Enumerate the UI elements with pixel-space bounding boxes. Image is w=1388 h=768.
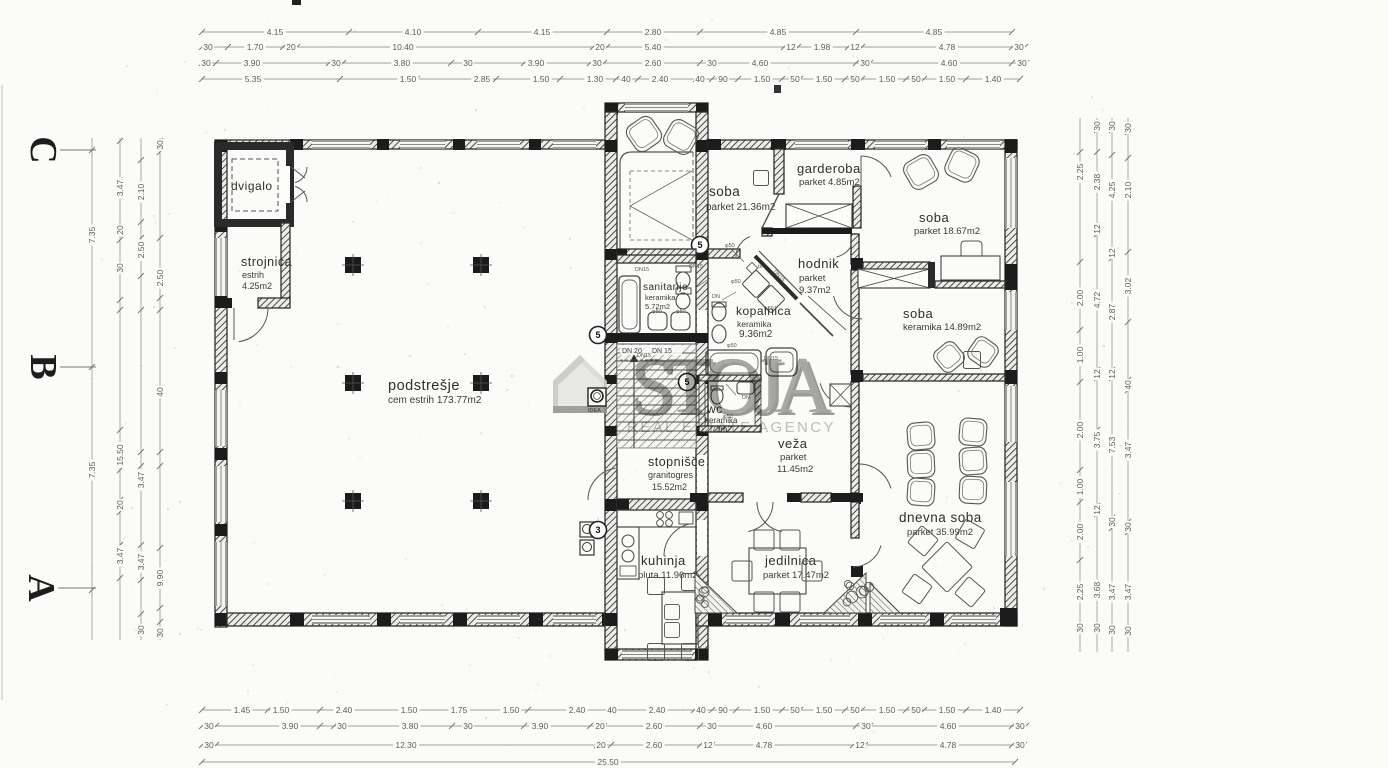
- svg-text:1.50: 1.50: [754, 705, 771, 715]
- svg-text:4.15: 4.15: [267, 27, 284, 37]
- svg-text:3.47: 3.47: [1123, 441, 1133, 458]
- svg-text:20: 20: [286, 42, 296, 52]
- svg-text:5.40: 5.40: [645, 42, 662, 52]
- svg-text:1.00: 1.00: [1075, 478, 1085, 495]
- svg-text:5.35: 5.35: [245, 74, 262, 84]
- svg-text:2.80: 2.80: [645, 27, 662, 37]
- svg-text:soba: soba: [919, 210, 949, 225]
- svg-text:STOJA: STOJA: [630, 342, 836, 430]
- svg-text:4.25: 4.25: [1107, 181, 1117, 198]
- svg-text:30: 30: [1107, 121, 1117, 131]
- svg-text:30: 30: [1107, 625, 1117, 635]
- svg-text:2.40: 2.40: [336, 705, 353, 715]
- svg-text:7.53: 7.53: [1107, 436, 1117, 453]
- svg-text:9.90: 9.90: [155, 569, 165, 586]
- svg-text:7.35: 7.35: [87, 461, 97, 478]
- svg-text:parket: parket: [799, 273, 826, 284]
- svg-text:12: 12: [1092, 369, 1102, 379]
- svg-text:1.30: 1.30: [587, 74, 604, 84]
- svg-text:φ50: φ50: [676, 309, 686, 315]
- svg-text:30: 30: [1015, 721, 1025, 731]
- svg-text:3.90: 3.90: [244, 58, 261, 68]
- svg-text:30: 30: [1092, 623, 1102, 633]
- svg-text:30: 30: [155, 628, 165, 638]
- svg-text:50: 50: [790, 74, 800, 84]
- svg-text:1.50: 1.50: [879, 705, 896, 715]
- svg-text:3.02: 3.02: [1123, 277, 1133, 294]
- svg-text:20: 20: [596, 740, 606, 750]
- svg-text:40: 40: [155, 387, 165, 397]
- svg-text:40: 40: [1123, 380, 1133, 390]
- svg-text:30: 30: [1123, 522, 1133, 532]
- svg-text:3.47: 3.47: [1123, 583, 1133, 600]
- svg-text:50: 50: [790, 705, 800, 715]
- svg-text:25.50: 25.50: [597, 757, 619, 767]
- svg-text:2.10: 2.10: [1123, 181, 1133, 198]
- svg-text:90: 90: [718, 705, 728, 715]
- svg-text:3.47: 3.47: [115, 179, 125, 196]
- svg-text:1.00: 1.00: [1075, 346, 1085, 363]
- svg-text:granitogres: granitogres: [648, 470, 694, 480]
- svg-text:9.37m2: 9.37m2: [799, 285, 831, 296]
- svg-text:12: 12: [1092, 224, 1102, 234]
- svg-text:12: 12: [1092, 505, 1102, 515]
- svg-text:10.40: 10.40: [392, 42, 414, 52]
- svg-text:4.25m2: 4.25m2: [242, 281, 272, 291]
- svg-text:2.50: 2.50: [136, 241, 146, 258]
- svg-text:12: 12: [786, 42, 796, 52]
- svg-text:veža: veža: [778, 436, 808, 451]
- svg-text:12: 12: [850, 42, 860, 52]
- svg-text:15.50: 15.50: [115, 444, 125, 466]
- svg-text:1.50: 1.50: [879, 74, 896, 84]
- svg-text:11.45m2: 11.45m2: [777, 464, 813, 475]
- svg-text:strojnica: strojnica: [241, 255, 292, 269]
- svg-text:2.85: 2.85: [474, 74, 491, 84]
- svg-text:φ50: φ50: [764, 306, 774, 312]
- svg-text:1.50: 1.50: [754, 74, 771, 84]
- svg-text:12: 12: [703, 740, 713, 750]
- svg-text:1.40: 1.40: [985, 74, 1002, 84]
- svg-text:2.50: 2.50: [155, 269, 165, 286]
- svg-text:1.40: 1.40: [985, 705, 1002, 715]
- svg-text:30: 30: [155, 140, 165, 150]
- svg-text:2.60: 2.60: [646, 721, 663, 731]
- svg-text:4.72: 4.72: [1092, 291, 1102, 308]
- svg-text:12: 12: [855, 740, 865, 750]
- svg-text:30: 30: [860, 58, 870, 68]
- svg-text:sanitarije: sanitarije: [643, 282, 688, 293]
- svg-text:40: 40: [696, 705, 706, 715]
- svg-text:2.60: 2.60: [646, 740, 663, 750]
- svg-text:1.50: 1.50: [816, 74, 833, 84]
- svg-text:φ50: φ50: [652, 309, 662, 315]
- svg-text:cem estrih 173.77m2: cem estrih 173.77m2: [388, 395, 482, 406]
- svg-text:REAL ESTATE AGENCY: REAL ESTATE AGENCY: [627, 419, 839, 436]
- svg-text:30: 30: [115, 263, 125, 273]
- svg-text:1.50: 1.50: [939, 705, 956, 715]
- svg-text:DN: DN: [712, 294, 720, 300]
- svg-text:30: 30: [463, 721, 473, 731]
- svg-text:40: 40: [695, 74, 705, 84]
- svg-text:30: 30: [1014, 42, 1024, 52]
- svg-text:30: 30: [707, 721, 717, 731]
- svg-text:1.98: 1.98: [814, 42, 831, 52]
- svg-text:ts: ts: [758, 264, 763, 270]
- svg-text:estrih: estrih: [242, 270, 264, 280]
- svg-text:2.40: 2.40: [652, 74, 669, 84]
- svg-text:9.36m2: 9.36m2: [739, 329, 773, 340]
- svg-text:4.60: 4.60: [756, 721, 773, 731]
- svg-text:2.25: 2.25: [1075, 163, 1085, 180]
- svg-text:keramika 14.89m2: keramika 14.89m2: [903, 322, 981, 333]
- svg-text:4.85: 4.85: [770, 27, 787, 37]
- svg-text:soba: soba: [903, 306, 933, 321]
- svg-text:A: A: [20, 574, 62, 602]
- svg-text:keramika: keramika: [645, 293, 676, 302]
- svg-text:2.38: 2.38: [1092, 173, 1102, 190]
- svg-text:1.50: 1.50: [816, 705, 833, 715]
- svg-text:parket 4.85m2: parket 4.85m2: [799, 177, 860, 188]
- svg-text:30: 30: [1123, 123, 1133, 133]
- svg-text:30: 30: [1107, 517, 1117, 527]
- svg-text:DN15: DN15: [689, 264, 703, 270]
- svg-text:4.85: 4.85: [926, 27, 943, 37]
- svg-text:3.90: 3.90: [528, 58, 545, 68]
- svg-text:kuhinja: kuhinja: [641, 553, 686, 568]
- svg-text:parket 21.36m2: parket 21.36m2: [706, 202, 776, 213]
- svg-text:4.15: 4.15: [534, 27, 551, 37]
- svg-text:12.30: 12.30: [395, 740, 417, 750]
- svg-text:30: 30: [337, 721, 347, 731]
- svg-text:1.50: 1.50: [400, 74, 417, 84]
- svg-text:3.47: 3.47: [1107, 583, 1117, 600]
- svg-text:2.60: 2.60: [645, 58, 662, 68]
- svg-text:30: 30: [204, 740, 214, 750]
- svg-text:1.50: 1.50: [273, 705, 290, 715]
- svg-text:12: 12: [1107, 369, 1117, 379]
- svg-text:50: 50: [911, 705, 921, 715]
- svg-text:IDEA: IDEA: [588, 408, 601, 414]
- svg-text:φ50: φ50: [731, 279, 741, 285]
- svg-text:4.78: 4.78: [940, 740, 957, 750]
- svg-text:30: 30: [203, 42, 213, 52]
- svg-text:5: 5: [697, 240, 702, 250]
- svg-text:15.52m2: 15.52m2: [652, 482, 687, 492]
- svg-text:4.78: 4.78: [756, 740, 773, 750]
- svg-text:4.10: 4.10: [405, 27, 422, 37]
- svg-text:30: 30: [1092, 121, 1102, 131]
- svg-text:1.70: 1.70: [247, 42, 264, 52]
- svg-text:50: 50: [850, 74, 860, 84]
- svg-text:stopnišče: stopnišče: [648, 455, 705, 469]
- svg-text:DN15: DN15: [635, 267, 649, 273]
- svg-text:C: C: [22, 136, 64, 163]
- svg-text:30: 30: [861, 721, 871, 731]
- svg-text:hodnik: hodnik: [798, 256, 839, 271]
- svg-text:4.60: 4.60: [752, 58, 769, 68]
- svg-text:1.45: 1.45: [234, 705, 251, 715]
- svg-text:20: 20: [595, 42, 605, 52]
- svg-text:1.50: 1.50: [533, 74, 550, 84]
- svg-text:podstrešje: podstrešje: [388, 378, 460, 394]
- svg-text:5: 5: [595, 330, 600, 340]
- svg-text:30: 30: [204, 721, 214, 731]
- svg-text:40: 40: [621, 74, 631, 84]
- svg-text:dvigalo: dvigalo: [231, 179, 273, 193]
- svg-text:20: 20: [595, 721, 605, 731]
- svg-text:20: 20: [115, 225, 125, 235]
- svg-text:2.00: 2.00: [1075, 289, 1085, 306]
- svg-text:30: 30: [1015, 740, 1025, 750]
- svg-text:φ50: φ50: [725, 243, 735, 249]
- svg-text:3.90: 3.90: [282, 721, 299, 731]
- svg-text:parket 18.67m2: parket 18.67m2: [914, 226, 980, 237]
- svg-text:3.90: 3.90: [532, 721, 549, 731]
- svg-text:3.68: 3.68: [1092, 581, 1102, 598]
- svg-text:30: 30: [201, 58, 211, 68]
- svg-text:parket 35.99m2: parket 35.99m2: [907, 527, 973, 538]
- svg-text:2.87: 2.87: [1107, 303, 1117, 320]
- svg-text:soba: soba: [709, 184, 740, 199]
- svg-text:30: 30: [463, 58, 473, 68]
- svg-text:30: 30: [592, 58, 602, 68]
- svg-text:1.50: 1.50: [503, 705, 520, 715]
- svg-text:3.47: 3.47: [136, 553, 146, 570]
- svg-text:12: 12: [1107, 248, 1117, 258]
- svg-text:3: 3: [595, 525, 600, 535]
- svg-text:3.47: 3.47: [136, 471, 146, 488]
- svg-text:50: 50: [911, 74, 921, 84]
- svg-text:1.75: 1.75: [451, 705, 468, 715]
- svg-text:30: 30: [707, 58, 717, 68]
- svg-text:30: 30: [136, 625, 146, 635]
- svg-text:parket: parket: [780, 452, 807, 463]
- svg-text:2.40: 2.40: [569, 705, 586, 715]
- svg-text:4.78: 4.78: [939, 42, 956, 52]
- svg-text:2.40: 2.40: [649, 705, 666, 715]
- svg-text:30: 30: [331, 58, 341, 68]
- svg-text:1.50: 1.50: [939, 74, 956, 84]
- svg-text:3.47: 3.47: [115, 547, 125, 564]
- svg-text:30: 30: [1123, 626, 1133, 636]
- svg-text:3.80: 3.80: [402, 721, 419, 731]
- svg-text:30: 30: [1017, 58, 1027, 68]
- svg-text:4.60: 4.60: [941, 58, 958, 68]
- svg-text:dnevna soba: dnevna soba: [899, 510, 982, 525]
- svg-text:4.60: 4.60: [940, 721, 957, 731]
- svg-text:20: 20: [115, 500, 125, 510]
- svg-text:3.75: 3.75: [1092, 431, 1102, 448]
- svg-text:2.00: 2.00: [1075, 421, 1085, 438]
- svg-text:garderoba: garderoba: [797, 161, 861, 176]
- svg-text:7.35: 7.35: [87, 226, 97, 243]
- svg-text:3.80: 3.80: [394, 58, 411, 68]
- svg-text:2.25: 2.25: [1075, 583, 1085, 600]
- svg-text:2.00: 2.00: [1075, 523, 1085, 540]
- svg-text:30: 30: [1075, 623, 1085, 633]
- svg-text:90: 90: [718, 74, 728, 84]
- svg-text:40: 40: [607, 705, 617, 715]
- svg-text:2.10: 2.10: [136, 183, 146, 200]
- svg-text:50: 50: [850, 705, 860, 715]
- svg-text:parket 17.47m2: parket 17.47m2: [763, 570, 829, 581]
- svg-text:B: B: [22, 354, 64, 379]
- svg-text:keramika: keramika: [737, 319, 772, 329]
- svg-text:1.50: 1.50: [401, 705, 418, 715]
- svg-text:pluta 11.96m2: pluta 11.96m2: [638, 570, 698, 581]
